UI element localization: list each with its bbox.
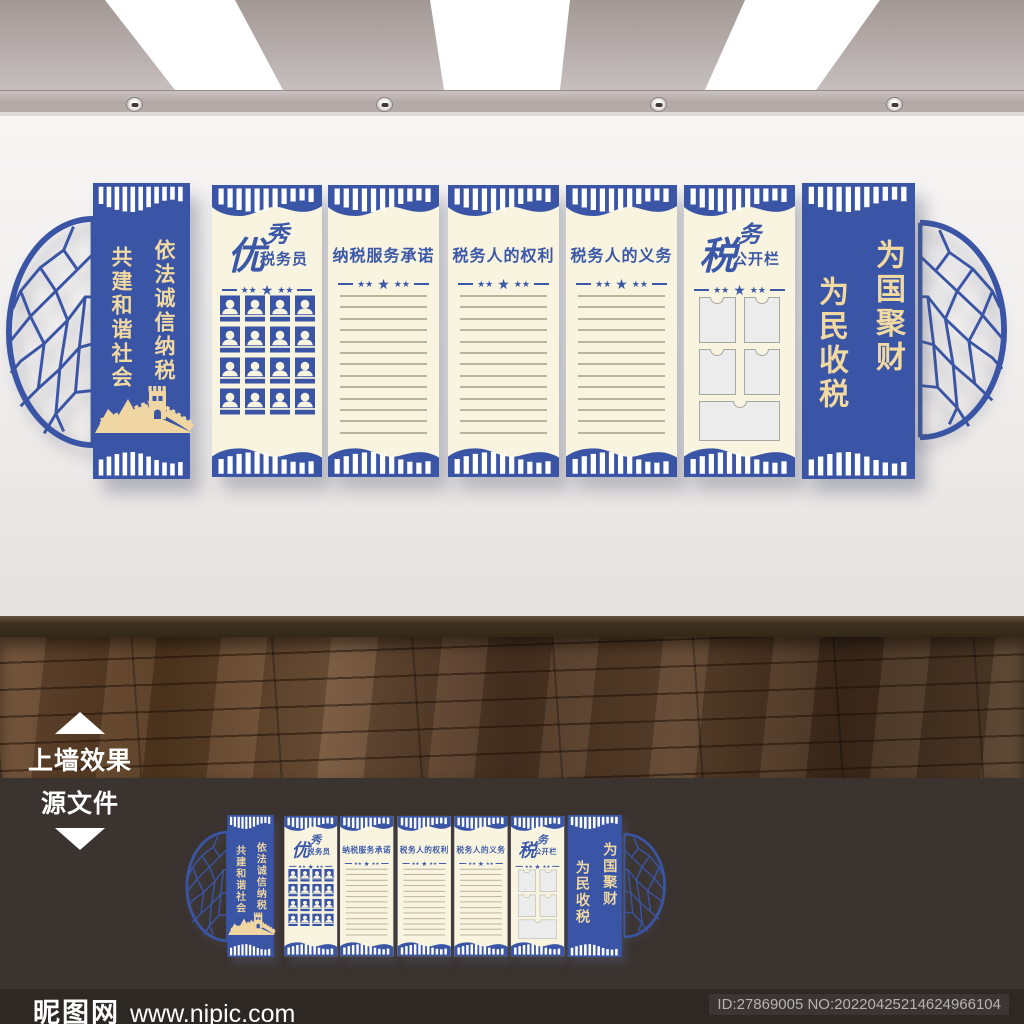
panel-title: 税 务 公开栏 <box>684 221 795 279</box>
ruled-line <box>460 318 547 320</box>
photo-placeholder-icon <box>288 869 298 882</box>
ruled-line <box>578 295 665 297</box>
document-pocket <box>518 895 536 917</box>
ruled-line <box>403 934 445 935</box>
photo-placeholder-icon <box>220 326 240 353</box>
ruled-line <box>460 918 502 919</box>
ceiling-rays <box>0 0 1024 90</box>
photo-placeholder-icon <box>270 357 290 384</box>
ruled-line <box>460 398 547 400</box>
ruled-line <box>340 420 427 422</box>
ruled-line <box>346 874 388 875</box>
ruled-line <box>340 295 427 297</box>
ruled-line <box>340 375 427 377</box>
comb-ornament-bottom <box>398 938 451 956</box>
comb-ornament-top <box>448 185 559 225</box>
document-frames <box>518 870 557 939</box>
site-name: 昵图网 <box>33 998 120 1024</box>
vertical-slogan: 为民收税 <box>808 239 852 412</box>
ruled-line <box>460 420 547 422</box>
ruled-line <box>340 386 427 388</box>
image-id-text: ID:27869005 NO:20220425214624966104 <box>709 994 1009 1015</box>
culture-wall: 依法诚信纳税 共建和谐社会 优 秀 税务员 ★★ ★ ★★ 纳税服务承诺 <box>185 815 667 960</box>
ruled-line <box>340 363 427 365</box>
ruled-line <box>346 929 388 930</box>
ruled-line <box>340 341 427 343</box>
photo-grid <box>284 869 337 927</box>
document-pocket-wide <box>699 401 780 441</box>
panel-taxpayer-rights: 税务人的权利 ★★ ★ ★★ <box>398 816 451 956</box>
ruled-line <box>346 902 388 903</box>
ruled-line <box>460 934 502 935</box>
photo-placeholder-icon <box>245 357 265 384</box>
ruled-line <box>460 923 502 924</box>
comb-ornament-top <box>227 815 274 836</box>
ruled-line <box>346 869 388 870</box>
vertical-slogan: 为民收税 <box>570 842 591 925</box>
light-slot <box>655 103 662 107</box>
left-lattice-semicircle <box>185 830 228 942</box>
panel-tax-service-commitment: 纳税服务承诺 ★★ ★ ★★ <box>328 185 439 477</box>
ceiling-light <box>376 97 393 112</box>
panel-excellent-tax-officers: 优 秀 税务员 ★★ ★ ★★ <box>212 185 322 477</box>
comb-ornament-bottom <box>566 440 677 477</box>
ruled-lines-area <box>578 295 665 443</box>
right-lattice-semicircle <box>918 219 1008 441</box>
panel-title: 纳税服务承诺 <box>340 843 393 855</box>
photo-placeholder-icon <box>220 295 240 322</box>
panel-title: 税务人的义务 <box>566 242 677 266</box>
comb-ornament-bottom <box>212 440 322 477</box>
ruled-line <box>340 306 427 308</box>
comb-ornament-bottom <box>454 938 507 956</box>
light-slot <box>891 103 898 107</box>
comb-ornament-bottom <box>568 938 622 957</box>
ruled-line <box>460 874 502 875</box>
ruled-line <box>403 896 445 897</box>
ruled-line <box>403 929 445 930</box>
ruled-line <box>578 409 665 411</box>
site-logo: 昵图网www.nipic.com <box>33 991 295 1024</box>
ruled-line <box>578 398 665 400</box>
right-slogan-banner: 为国聚财 为民收税 <box>568 815 622 957</box>
document-pocket <box>744 349 781 395</box>
photo-placeholder-icon <box>295 388 315 415</box>
panel-title: 优 秀 税务员 <box>284 833 337 861</box>
ruled-line <box>340 398 427 400</box>
ruled-line <box>346 880 388 881</box>
comb-ornament-top <box>398 816 451 835</box>
panel-title: 优 秀 税务员 <box>212 221 322 279</box>
ruled-line <box>578 341 665 343</box>
ruled-line <box>460 432 547 434</box>
panel-taxpayer-obligations: 税务人的义务 ★★ ★ ★★ <box>566 185 677 477</box>
screenshot-root: 下载文件包含： 文字转曲+没转曲+上墙效果 图中字体仅供参考 上墙效果 源文件 … <box>0 0 1024 1024</box>
star-divider: ★★ ★ ★★ <box>345 860 389 867</box>
ruled-lines-area <box>460 295 547 443</box>
comb-ornament-top <box>568 815 622 836</box>
photo-placeholder-icon <box>324 913 334 926</box>
watermark-bar: 昵图网www.nipic.com ID:27869005 NO:20220425… <box>0 989 1024 1024</box>
document-pocket <box>699 349 736 395</box>
document-pocket-wide <box>518 920 557 939</box>
photo-placeholder-icon <box>288 913 298 926</box>
photo-placeholder-icon <box>324 884 334 897</box>
photo-placeholder-icon <box>245 388 265 415</box>
ruled-line <box>460 913 502 914</box>
left-slogan-banner: 依法诚信纳税 共建和谐社会 <box>93 183 190 479</box>
panel-tax-public-board: 税 务 公开栏 ★★ ★ ★★ <box>684 185 795 477</box>
ceiling-light <box>126 97 143 112</box>
photo-placeholder-icon <box>312 913 322 926</box>
photo-placeholder-icon <box>270 295 290 322</box>
wall-effect-label: 上墙效果 <box>18 712 142 777</box>
ruled-line <box>346 918 388 919</box>
right-banner-text: 为国聚财 为民收税 <box>568 842 622 925</box>
arrow-down-icon <box>55 828 105 850</box>
star-divider: ★★ ★ ★★ <box>402 860 446 867</box>
ruled-line <box>460 409 547 411</box>
right-lattice-semicircle <box>623 832 666 939</box>
ruled-line <box>578 375 665 377</box>
comb-ornament-bottom <box>802 439 915 479</box>
photo-placeholder-icon <box>312 899 322 912</box>
ruled-line <box>403 913 445 914</box>
star-divider: ★★ ★ ★★ <box>458 277 549 291</box>
ruled-line <box>403 891 445 892</box>
star-divider: ★★ ★ ★★ <box>694 283 785 297</box>
photo-placeholder-icon <box>270 326 290 353</box>
ruled-line <box>460 891 502 892</box>
comb-ornament-bottom <box>284 938 337 956</box>
document-pocket <box>744 297 781 343</box>
photo-placeholder-icon <box>270 388 290 415</box>
panel-tax-public-board: 税 务 公开栏 ★★ ★ ★★ <box>511 816 564 956</box>
light-slot <box>381 103 388 107</box>
ruled-line <box>403 885 445 886</box>
ceiling-light <box>886 97 903 112</box>
ruled-line <box>460 902 502 903</box>
ceiling-light <box>650 97 667 112</box>
ruled-lines-area <box>346 869 388 940</box>
panel-title: 税 务 公开栏 <box>511 833 564 861</box>
panel-title: 税务人的义务 <box>454 843 507 855</box>
document-pocket <box>518 870 536 892</box>
photo-placeholder-icon <box>288 884 298 897</box>
comb-ornament-bottom <box>448 440 559 477</box>
photo-placeholder-icon <box>300 913 310 926</box>
ruled-line <box>403 918 445 919</box>
panel-title: 税务人的权利 <box>448 242 559 266</box>
photo-placeholder-icon <box>295 357 315 384</box>
photo-placeholder-icon <box>245 295 265 322</box>
site-url: www.nipic.com <box>130 1000 295 1024</box>
photo-placeholder-icon <box>300 884 310 897</box>
panel-excellent-tax-officers: 优 秀 税务员 ★★ ★ ★★ <box>284 816 337 956</box>
vertical-slogan: 为国聚财 <box>598 842 619 925</box>
wood-floor <box>0 637 1024 778</box>
comb-ornament-top <box>340 816 393 835</box>
left-lattice-semicircle <box>5 215 95 449</box>
ruled-line <box>460 375 547 377</box>
star-divider: ★★ ★ ★★ <box>516 863 560 870</box>
photo-placeholder-icon <box>300 899 310 912</box>
ruled-line <box>460 363 547 365</box>
ruled-line <box>403 902 445 903</box>
great-wall-icon <box>228 902 276 937</box>
panel-title: 税务人的权利 <box>398 843 451 855</box>
light-slot <box>131 103 138 107</box>
photo-placeholder-icon <box>324 869 334 882</box>
ruled-line <box>346 907 388 908</box>
photo-placeholder-icon <box>288 899 298 912</box>
vertical-slogan: 为国聚财 <box>865 239 909 412</box>
ruled-line <box>346 934 388 935</box>
ruled-line <box>340 352 427 354</box>
comb-ornament-top <box>802 183 915 226</box>
baseboard <box>0 616 1024 637</box>
star-divider: ★★ ★ ★★ <box>576 277 667 291</box>
ruled-line <box>340 432 427 434</box>
ceiling <box>0 0 1024 90</box>
comb-ornament-top <box>454 816 507 835</box>
ruled-line <box>460 352 547 354</box>
ruled-line <box>578 329 665 331</box>
document-pocket <box>539 870 557 892</box>
comb-ornament-bottom <box>93 439 190 479</box>
ruled-line <box>460 907 502 908</box>
left-slogan-banner: 依法诚信纳税 共建和谐社会 <box>227 815 274 957</box>
document-frames <box>699 297 780 441</box>
photo-placeholder-icon <box>295 295 315 322</box>
ruled-line <box>460 880 502 881</box>
ruled-line <box>403 907 445 908</box>
photo-placeholder-icon <box>324 899 334 912</box>
arrow-up-icon <box>55 712 105 734</box>
photo-placeholder-icon <box>300 869 310 882</box>
right-slogan-banner: 为国聚财 为民收税 <box>802 183 915 479</box>
ruled-line <box>403 923 445 924</box>
ruled-line <box>403 869 445 870</box>
ruled-line <box>340 409 427 411</box>
ruled-line <box>460 869 502 870</box>
culture-wall-preview: 依法诚信纳税 共建和谐社会 优 秀 税务员 ★★ ★ ★★ 纳税服务承诺 <box>185 815 667 960</box>
culture-wall: 依法诚信纳税 共建和谐社会 优 秀 税务员 ★★ ★ ★★ 纳税服务承诺 <box>5 183 1010 485</box>
ruled-line <box>403 874 445 875</box>
photo-placeholder-icon <box>245 326 265 353</box>
star-divider: ★★ ★ ★★ <box>459 860 503 867</box>
ruled-lines-area <box>340 295 427 443</box>
ruled-lines-area <box>403 869 445 940</box>
ruled-line <box>346 896 388 897</box>
document-pocket <box>539 895 557 917</box>
comb-ornament-bottom <box>328 440 439 477</box>
document-pocket <box>699 297 736 343</box>
photo-placeholder-icon <box>312 869 322 882</box>
ruled-line <box>346 885 388 886</box>
comb-ornament-bottom <box>684 440 795 477</box>
ruled-line <box>460 329 547 331</box>
ruled-line <box>403 880 445 881</box>
ruled-line <box>578 420 665 422</box>
ruled-line <box>578 352 665 354</box>
ruled-line <box>346 923 388 924</box>
star-divider: ★★ ★ ★★ <box>338 277 429 291</box>
great-wall-icon <box>95 365 195 437</box>
comb-ornament-bottom <box>340 938 393 956</box>
source-file-label: 源文件 <box>18 784 142 850</box>
ruled-line <box>578 386 665 388</box>
ruled-line <box>346 891 388 892</box>
ruled-line <box>460 341 547 343</box>
photo-placeholder-icon <box>295 326 315 353</box>
comb-ornament-bottom <box>227 938 274 957</box>
ruled-line <box>460 929 502 930</box>
panel-taxpayer-obligations: 税务人的义务 ★★ ★ ★★ <box>454 816 507 956</box>
ruled-line <box>460 295 547 297</box>
ruled-line <box>340 329 427 331</box>
ruled-line <box>346 913 388 914</box>
comb-ornament-top <box>328 185 439 225</box>
comb-ornament-bottom <box>511 938 564 956</box>
photo-placeholder-icon <box>220 388 240 415</box>
ruled-line <box>340 318 427 320</box>
ruled-line <box>460 885 502 886</box>
ruled-line <box>460 386 547 388</box>
right-banner-text: 为国聚财 为民收税 <box>802 239 915 412</box>
panel-tax-service-commitment: 纳税服务承诺 ★★ ★ ★★ <box>340 816 393 956</box>
panel-title: 纳税服务承诺 <box>328 242 439 266</box>
ceiling-trim <box>0 90 1024 117</box>
ruled-lines-area <box>460 869 502 940</box>
culture-wall-main: 依法诚信纳税 共建和谐社会 优 秀 税务员 ★★ ★ ★★ 纳税服务承诺 <box>5 183 1010 485</box>
photo-placeholder-icon <box>220 357 240 384</box>
photo-placeholder-icon <box>312 884 322 897</box>
photo-grid <box>212 295 322 415</box>
ruled-line <box>460 306 547 308</box>
ruled-line <box>578 432 665 434</box>
ruled-line <box>578 306 665 308</box>
ruled-line <box>578 318 665 320</box>
ruled-line <box>578 363 665 365</box>
comb-ornament-top <box>93 183 190 226</box>
ruled-line <box>460 896 502 897</box>
panel-taxpayer-rights: 税务人的权利 ★★ ★ ★★ <box>448 185 559 477</box>
comb-ornament-top <box>566 185 677 225</box>
